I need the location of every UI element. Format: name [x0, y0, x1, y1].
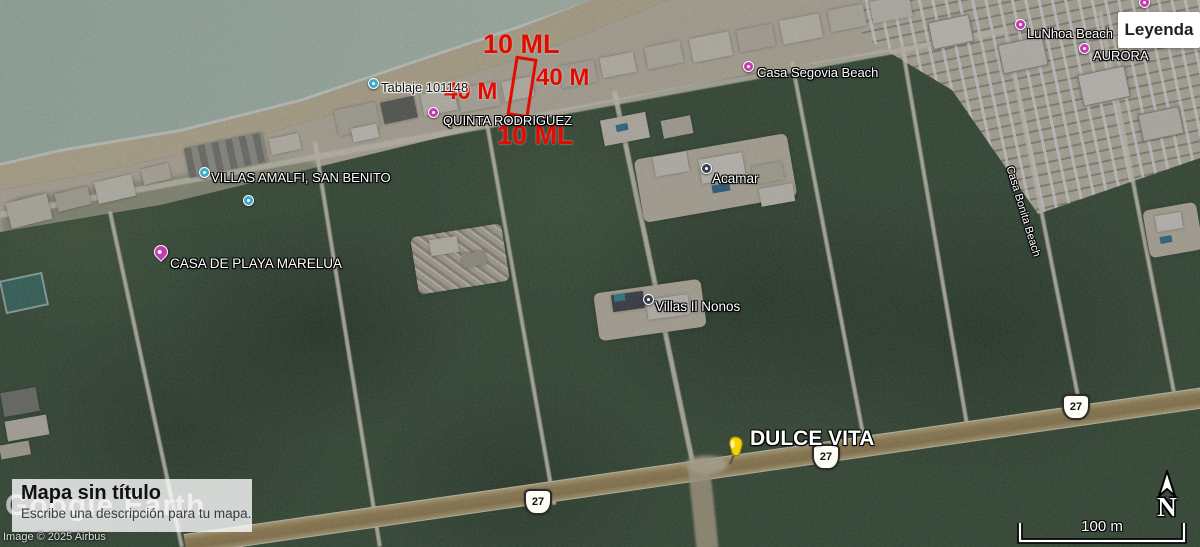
circle-pin-icon[interactable] [1015, 19, 1026, 30]
street-label-beach-label: Casa Bonita Beach [1003, 165, 1041, 258]
placemark-dulce-vita-label[interactable]: DULCE VITA [750, 428, 874, 449]
map-title-panel[interactable]: Mapa sin título Escribe una descripción … [12, 479, 252, 532]
circle-pin-icon[interactable] [368, 78, 379, 89]
circle-pin-icon[interactable] [701, 163, 712, 174]
imagery-attribution: Image © 2025 Airbus [3, 531, 106, 543]
circle-pin-icon[interactable] [643, 294, 654, 305]
map-title[interactable]: Mapa sin título [21, 482, 252, 505]
circle-pin-icon[interactable] [199, 167, 210, 178]
north-indicator: N [1146, 468, 1188, 503]
placemark-casa-segovia-label[interactable]: Casa Segovia Beach [757, 66, 878, 79]
drop-pin-icon[interactable] [151, 242, 171, 262]
north-letter: N [1149, 492, 1185, 523]
placemark-villas-il-nonos-label[interactable]: Villas Il Nonos [655, 300, 740, 314]
circle-pin-icon[interactable] [1139, 0, 1150, 8]
circle-pin-icon[interactable] [428, 107, 439, 118]
my-maps-satellite-view: 272727 Tablaje 101148QUINTA RODRIGUEZVIL… [0, 0, 1200, 547]
placemark-layer: Tablaje 101148QUINTA RODRIGUEZVILLAS AMA… [0, 0, 1200, 547]
circle-pin-icon[interactable] [1079, 43, 1090, 54]
scale-bar: 100 m [1017, 521, 1187, 545]
placemark-aurora-label[interactable]: AURORA [1093, 49, 1149, 62]
pushpin-icon[interactable] [722, 436, 748, 471]
placemark-tablaje-label[interactable]: Tablaje 101148 [381, 81, 468, 94]
map-description[interactable]: Escribe una descripción para tu mapa. [21, 506, 252, 521]
placemark-acamar-label[interactable]: Acamar [712, 172, 759, 186]
circle-pin-icon[interactable] [243, 195, 254, 206]
placemark-casa-marelua-label[interactable]: CASA DE PLAYA MARELUA [170, 257, 342, 271]
placemark-lunhoa-beach-label[interactable]: LuNhoa Beach [1027, 27, 1113, 40]
circle-pin-icon[interactable] [743, 61, 754, 72]
placemark-villas-amalfi-label[interactable]: VILLAS AMALFI, SAN BENITO [211, 171, 391, 184]
legend-button[interactable]: Leyenda [1118, 12, 1200, 48]
placemark-quinta-rodriguez-label[interactable]: QUINTA RODRIGUEZ [443, 114, 572, 127]
